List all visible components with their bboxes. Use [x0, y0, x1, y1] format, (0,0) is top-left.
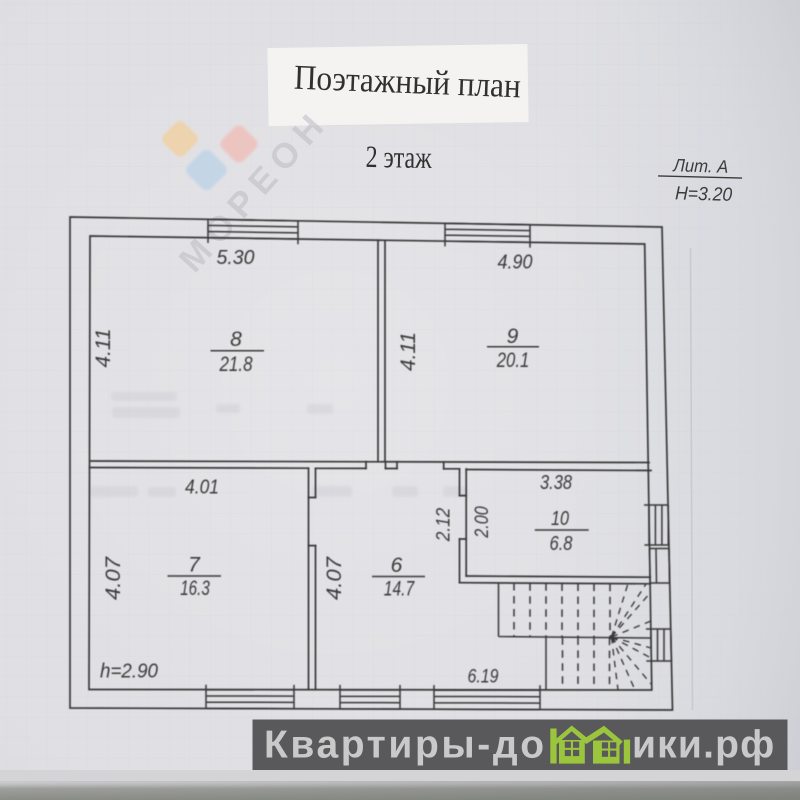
- svg-text:20.1: 20.1: [496, 349, 529, 372]
- svg-text:4.07: 4.07: [323, 556, 346, 600]
- svg-text:2.12: 2.12: [434, 507, 455, 542]
- svg-text:14.7: 14.7: [384, 578, 415, 601]
- svg-text:Квартиры-до: Квартиры-до: [264, 724, 547, 767]
- svg-text:2 этаж: 2 этаж: [365, 139, 432, 175]
- svg-text:10: 10: [551, 508, 569, 530]
- svg-text:Н=3.20: Н=3.20: [675, 183, 733, 205]
- svg-text:4.07: 4.07: [102, 556, 125, 600]
- svg-text:21.8: 21.8: [219, 353, 253, 376]
- svg-text:4.11: 4.11: [397, 332, 420, 371]
- svg-text:7: 7: [188, 554, 201, 577]
- svg-text:6.8: 6.8: [550, 533, 573, 555]
- svg-text:4.11: 4.11: [92, 329, 115, 368]
- svg-text:8: 8: [230, 328, 242, 351]
- svg-text:h=2.90: h=2.90: [100, 661, 158, 683]
- svg-text:5.30: 5.30: [217, 247, 255, 269]
- svg-text:Лит. А: Лит. А: [672, 155, 728, 176]
- svg-text:4.01: 4.01: [185, 477, 219, 499]
- svg-text:6.19: 6.19: [468, 666, 499, 688]
- svg-text:3.38: 3.38: [540, 472, 572, 494]
- svg-text:16.3: 16.3: [180, 577, 210, 600]
- svg-text:2.00: 2.00: [472, 506, 493, 539]
- svg-text:ики.рф: ики.рф: [632, 724, 775, 767]
- svg-text:4.90: 4.90: [498, 252, 533, 274]
- svg-text:6: 6: [391, 554, 403, 577]
- svg-text:9: 9: [507, 325, 519, 348]
